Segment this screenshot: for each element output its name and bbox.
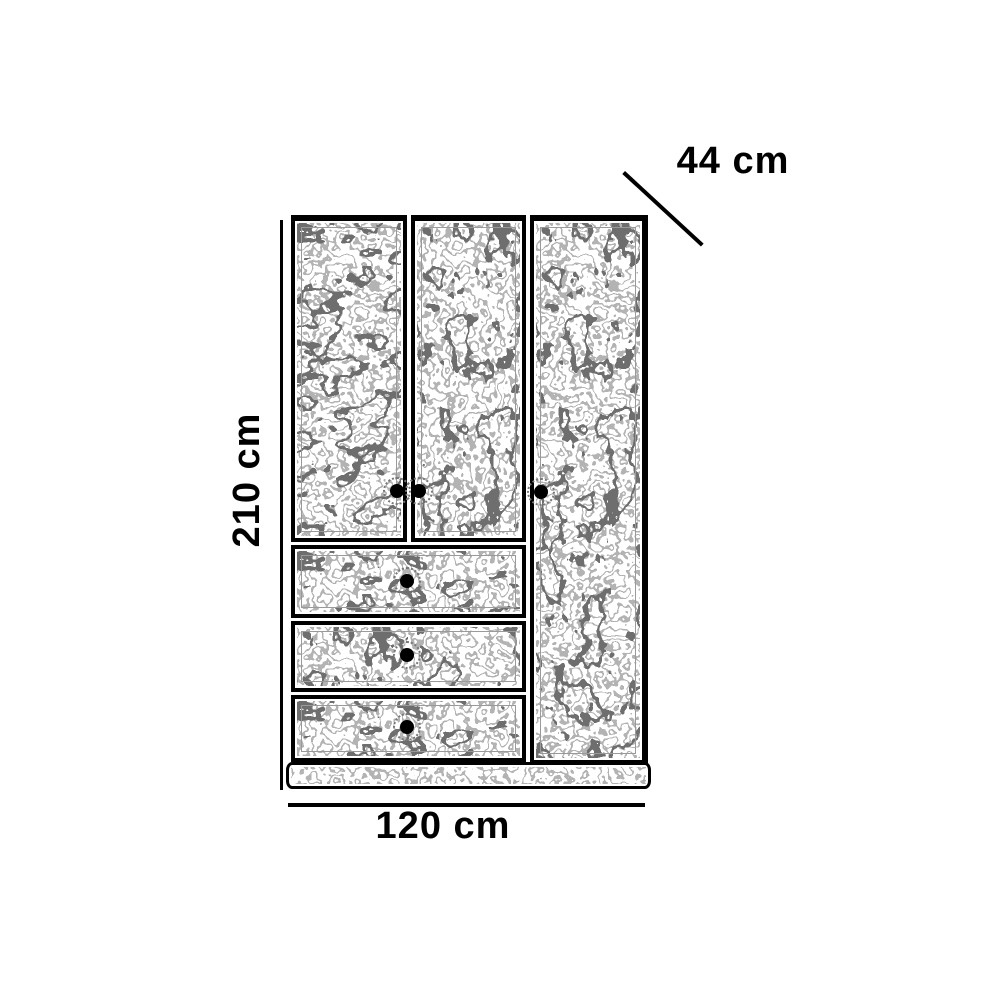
wardrobe-dimension-diagram: 210 cm [0,0,1000,1000]
door-knob-right [534,485,548,499]
drawer-knob-top [400,574,414,588]
wardrobe-plinth [286,762,651,789]
depth-dimension-label: 44 cm [633,136,833,186]
sketch-texture [291,767,646,784]
height-dimension-label: 210 cm [222,380,272,580]
door-knob-middle [412,484,426,498]
width-dimension-label: 120 cm [343,801,543,851]
drawer-knob-middle [400,648,414,662]
height-dimension-line [280,220,283,790]
drawer-knob-bottom [400,720,414,734]
door-knob-left [390,484,404,498]
